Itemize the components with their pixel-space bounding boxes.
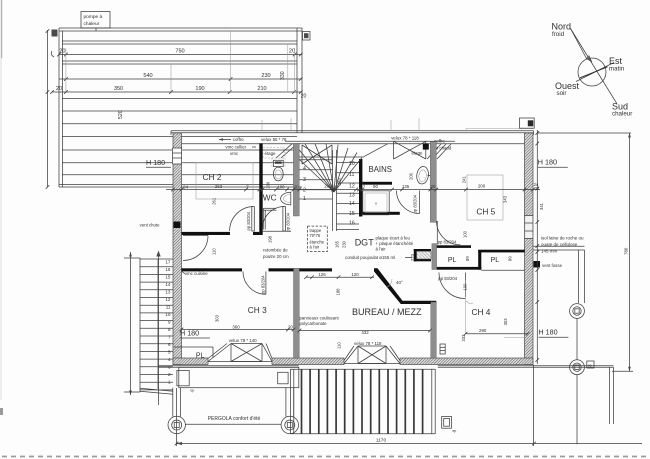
- svg-text:100: 100: [462, 283, 467, 291]
- svg-text:200: 200: [478, 184, 486, 189]
- svg-text:110: 110: [337, 342, 342, 349]
- svg-text:vmc cellier: vmc cellier: [225, 145, 246, 150]
- svg-text:CH 5: CH 5: [476, 206, 495, 216]
- svg-text:20: 20: [431, 184, 436, 189]
- svg-text:2: 2: [168, 372, 171, 377]
- svg-text:à l'air: à l'air: [310, 245, 320, 250]
- svg-text:165: 165: [335, 240, 340, 248]
- svg-text:190: 190: [195, 86, 204, 92]
- svg-text:60: 60: [465, 256, 470, 261]
- svg-text:velux 78 * 140: velux 78 * 140: [229, 338, 257, 343]
- svg-text:panneaux coulissant: panneaux coulissant: [300, 316, 340, 321]
- svg-text:188: 188: [335, 288, 340, 296]
- svg-text:15: 15: [349, 211, 355, 217]
- svg-text:100: 100: [278, 185, 286, 190]
- svg-text:432: 432: [361, 330, 369, 335]
- svg-text:étage: étage: [412, 151, 424, 156]
- svg-text:540: 540: [143, 73, 152, 79]
- svg-text:vent fosse: vent fosse: [542, 263, 563, 268]
- svg-text:vmc cuisine: vmc cuisine: [185, 271, 208, 276]
- svg-text:11: 11: [349, 172, 354, 178]
- svg-text:ep: ep: [453, 429, 457, 433]
- svg-text:343: 343: [503, 195, 508, 203]
- svg-text:12: 12: [165, 297, 171, 302]
- svg-text:chaleur: chaleur: [612, 110, 632, 117]
- svg-text:soir: soir: [557, 90, 567, 97]
- svg-text:210: 210: [257, 86, 266, 92]
- svg-text:10: 10: [349, 161, 355, 167]
- svg-text:750: 750: [175, 49, 184, 55]
- svg-text:plaque écart à feu: plaque écart à feu: [376, 236, 411, 241]
- svg-text:étage: étage: [265, 151, 277, 156]
- svg-text:90: 90: [373, 184, 378, 189]
- svg-text:11: 11: [166, 305, 171, 310]
- svg-text:360: 360: [232, 324, 240, 329]
- svg-text:vent chute: vent chute: [140, 223, 160, 228]
- svg-text:333: 333: [461, 334, 466, 342]
- svg-text:126: 126: [318, 272, 326, 277]
- svg-text:261: 261: [212, 197, 217, 205]
- svg-text:+ plaque étanchéité: + plaque étanchéité: [376, 241, 414, 246]
- svg-text:16: 16: [165, 267, 171, 272]
- svg-text:chaleur: chaleur: [84, 21, 100, 27]
- svg-text:13: 13: [165, 290, 171, 295]
- svg-text:24: 24: [183, 185, 188, 190]
- svg-text:pp 83/204: pp 83/204: [261, 275, 266, 294]
- svg-text:6: 6: [168, 342, 171, 347]
- svg-text:263: 263: [215, 184, 223, 189]
- svg-text:40°: 40°: [396, 280, 403, 285]
- svg-text:ep: ep: [191, 389, 195, 393]
- svg-text:70*76: 70*76: [310, 233, 321, 238]
- svg-text:206: 206: [409, 172, 414, 180]
- svg-text:230: 230: [342, 240, 347, 248]
- svg-text:13: 13: [349, 192, 355, 198]
- svg-text:H 180: H 180: [538, 328, 557, 337]
- svg-text:froid: froid: [552, 31, 565, 38]
- svg-text:12: 12: [349, 183, 355, 189]
- svg-text:H 180: H 180: [538, 158, 557, 167]
- svg-text:198: 198: [267, 235, 272, 243]
- svg-text:H 180: H 180: [146, 158, 165, 167]
- svg-text:230: 230: [261, 73, 270, 79]
- svg-text:PL: PL: [448, 257, 457, 264]
- svg-text:à l'air: à l'air: [376, 247, 387, 252]
- svg-text:5: 5: [168, 350, 171, 355]
- svg-text:matin: matin: [609, 66, 625, 73]
- svg-text:8: 8: [168, 327, 171, 332]
- svg-text:303: 303: [503, 318, 508, 326]
- svg-text:pp 83/204: pp 83/204: [412, 194, 417, 213]
- svg-text:velux 78 * 118: velux 78 * 118: [391, 135, 419, 140]
- svg-text:240: 240: [337, 177, 342, 185]
- svg-text:110: 110: [211, 248, 216, 255]
- svg-text:341: 341: [539, 202, 544, 210]
- svg-text:145 mm: 145 mm: [541, 249, 558, 254]
- svg-text:poutre 20 cm: poutre 20 cm: [263, 254, 289, 259]
- svg-text:520: 520: [118, 110, 124, 119]
- svg-text:WC: WC: [263, 192, 277, 202]
- svg-text:isol laine de roche ou: isol laine de roche ou: [541, 236, 584, 241]
- svg-text:303: 303: [214, 314, 219, 322]
- svg-text:Est: Est: [609, 56, 623, 66]
- svg-text:20: 20: [59, 49, 65, 55]
- svg-text:retombée de: retombée de: [263, 248, 288, 253]
- svg-text:PERGOLA confort d'été: PERGOLA confort d'été: [208, 416, 261, 422]
- svg-text:pp 83/204: pp 83/204: [286, 212, 291, 231]
- svg-text:9: 9: [168, 320, 171, 325]
- svg-text:20: 20: [288, 324, 293, 329]
- svg-text:206: 206: [266, 181, 271, 189]
- svg-text:4: 4: [168, 357, 171, 362]
- svg-text:20: 20: [294, 185, 299, 190]
- svg-text:20: 20: [301, 94, 307, 100]
- svg-text:241: 241: [461, 176, 466, 184]
- svg-text:20: 20: [56, 86, 62, 92]
- svg-text:17: 17: [165, 260, 171, 265]
- svg-text:BAINS: BAINS: [369, 165, 392, 174]
- svg-text:PL: PL: [491, 257, 500, 264]
- svg-text:CH 3: CH 3: [248, 305, 267, 315]
- svg-text:CH 2: CH 2: [203, 172, 222, 182]
- svg-text:2: 2: [303, 188, 306, 194]
- svg-text:24: 24: [534, 182, 539, 187]
- svg-text:1170: 1170: [376, 438, 387, 444]
- svg-text:pp 83/204: pp 83/204: [246, 211, 251, 230]
- svg-text:velux 55 * 78: velux 55 * 78: [261, 137, 287, 142]
- svg-text:14: 14: [165, 282, 171, 287]
- svg-text:BUREAU / MEZZ: BUREAU / MEZZ: [352, 307, 422, 317]
- svg-text:780: 780: [624, 247, 629, 255]
- svg-text:200: 200: [324, 184, 332, 189]
- svg-text:350: 350: [114, 86, 123, 92]
- svg-text:3: 3: [303, 177, 306, 183]
- svg-text:120: 120: [351, 272, 359, 277]
- svg-text:14: 14: [349, 201, 355, 207]
- svg-text:velux 78 * 118: velux 78 * 118: [354, 341, 382, 346]
- svg-text:DGT: DGT: [355, 238, 375, 248]
- svg-text:vmc: vmc: [230, 151, 239, 156]
- svg-text:100: 100: [462, 230, 467, 238]
- svg-text:coffre: coffre: [233, 137, 244, 142]
- svg-text:pp 83/204: pp 83/204: [438, 276, 457, 281]
- svg-text:4: 4: [303, 166, 306, 172]
- svg-text:7: 7: [168, 335, 171, 340]
- svg-text:16: 16: [349, 221, 355, 227]
- svg-text:ep: ep: [588, 364, 592, 368]
- svg-text:330: 330: [280, 71, 286, 80]
- svg-text:pp 83/204: pp 83/204: [438, 239, 457, 244]
- svg-text:1: 1: [168, 380, 171, 385]
- svg-text:10: 10: [165, 312, 171, 317]
- svg-text:60: 60: [508, 256, 513, 261]
- svg-text:15: 15: [165, 275, 171, 280]
- svg-text:polycarbonate: polycarbonate: [300, 321, 328, 326]
- svg-text:CH 4: CH 4: [472, 307, 491, 317]
- svg-text:x: x: [375, 201, 377, 206]
- svg-text:20: 20: [289, 49, 295, 55]
- svg-text:290: 290: [479, 328, 487, 333]
- svg-text:223: 223: [410, 253, 415, 261]
- svg-text:135: 135: [402, 184, 410, 189]
- svg-text:1: 1: [303, 196, 306, 202]
- svg-text:PL: PL: [196, 353, 205, 360]
- svg-text:pompe à: pompe à: [84, 14, 103, 20]
- svg-text:conduit poujoulat ø155 ml: conduit poujoulat ø155 ml: [345, 255, 395, 260]
